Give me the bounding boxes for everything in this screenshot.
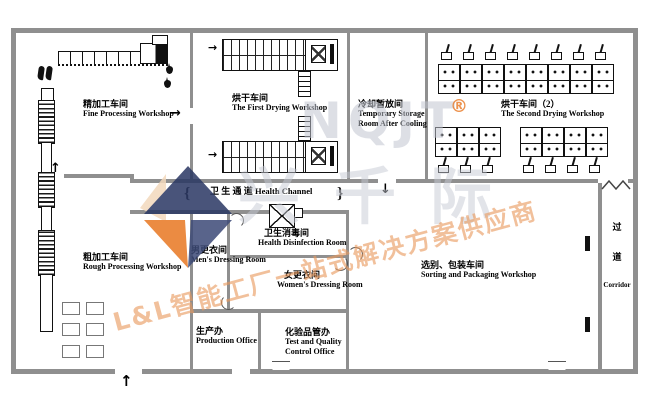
room-label-first-drying: 烘干车间 The First Drying Workshop <box>232 93 327 113</box>
wall-main-horizontal <box>396 179 598 183</box>
door-swing <box>348 247 363 262</box>
room-label-production-office: 生产办 Production Office <box>196 326 257 346</box>
door-brace: { <box>184 186 190 202</box>
hand-truck-icon <box>484 43 497 61</box>
drying-cabinet <box>526 64 548 94</box>
entrance-arrow-up: ↑ <box>120 374 133 389</box>
room-label-temporary-storage: 冷却暂放间 Temporary Storage Room After Cooli… <box>358 99 427 128</box>
production-line-segment <box>38 100 55 144</box>
hand-truck-icon <box>550 43 563 61</box>
fan-icon <box>311 147 326 165</box>
room-label-men-dressing: 男更衣间 Men's Dressing Room <box>191 245 266 265</box>
production-line-segment <box>38 230 55 276</box>
flow-arrow-down: ↓ <box>380 183 391 196</box>
pass-through-window <box>269 204 295 228</box>
dryer-head <box>306 40 337 70</box>
fan-icon <box>37 66 45 81</box>
door-swing <box>333 256 348 271</box>
drying-cabinet <box>570 64 592 94</box>
door-leaf <box>585 317 590 332</box>
work-table <box>86 323 104 336</box>
factory-floor-plan: → → → ↑ ↑ ↓ { } 精加工车间 Fine Processing Wo… <box>0 0 650 403</box>
flow-arrow-right: → <box>208 42 217 53</box>
flow-arrow-up: ↑ <box>50 162 61 175</box>
dryer-head <box>306 142 337 172</box>
wall-firstdrying-storage <box>347 33 350 179</box>
drying-cabinet <box>479 127 501 157</box>
hand-truck-icon <box>588 156 601 174</box>
wall-dressing-left <box>190 210 193 370</box>
droplet-icon <box>166 66 173 74</box>
hand-truck-icon <box>506 43 519 61</box>
drying-cabinet <box>592 64 614 94</box>
wall-fine-rough-divider <box>64 174 134 178</box>
wall-outer-top <box>11 28 638 33</box>
drying-cabinet <box>504 64 526 94</box>
drying-cabinet <box>520 127 542 157</box>
trolley-stack <box>298 116 311 141</box>
production-line-segment <box>41 206 52 232</box>
hand-truck-icon <box>462 43 475 61</box>
room-label-quality-office: 化验品管办 Test and Quality Control Office <box>285 327 342 356</box>
drying-cabinet <box>460 64 482 94</box>
fan-icon <box>45 66 53 81</box>
fan-icon <box>311 45 326 63</box>
work-table <box>86 302 104 315</box>
room-label-fine-processing: 精加工车间 Fine Processing Workshop <box>83 99 174 119</box>
wall-outer-right <box>633 28 638 374</box>
hand-truck-icon <box>572 43 585 61</box>
room-label-health-disinfection: 卫生消毒间 Health Disinfection Room <box>258 228 346 248</box>
folding-door-icon <box>601 178 633 191</box>
wall-sorting-left <box>346 210 349 370</box>
hand-truck-icon <box>594 43 607 61</box>
work-table <box>62 345 80 358</box>
droplet-icon <box>164 80 171 88</box>
room-label-sorting-packaging: 选别、包装车间 Sorting and Packaging Workshop <box>421 260 536 280</box>
room-label-second-drying: 烘干车间（2） The Second Drying Workshop <box>501 99 604 119</box>
wall-outer-bottom <box>250 369 638 374</box>
wall-fine-firstdrying <box>190 124 193 179</box>
door-leaf <box>585 236 590 251</box>
conveyor-end-machine <box>140 43 168 64</box>
hand-truck-icon <box>566 156 579 174</box>
drying-machine <box>222 39 338 71</box>
door-brace: } <box>337 186 343 202</box>
hand-truck-icon <box>544 156 557 174</box>
hand-truck-icon <box>437 156 450 174</box>
drying-cabinet <box>435 127 457 157</box>
wall-offices-top <box>190 309 348 313</box>
wall-offices-divider <box>258 313 261 370</box>
wall-outer-bottom <box>11 369 115 374</box>
work-table <box>62 302 80 315</box>
hand-truck-icon <box>440 43 453 61</box>
wall-outer-left <box>11 28 16 374</box>
dryer-grid <box>223 142 306 172</box>
room-label-rough-processing: 粗加工车间 Rough Processing Workshop <box>83 252 181 272</box>
dryer-bar <box>330 44 334 64</box>
drying-cabinet <box>564 127 586 157</box>
room-label-corridor: 过 道 Corridor <box>598 222 636 289</box>
wall-outer-bottom <box>142 369 232 374</box>
wall-fine-firstdrying <box>190 33 193 108</box>
drying-cabinet <box>542 127 564 157</box>
drying-cabinet <box>548 64 570 94</box>
conveyor-hopper <box>152 35 168 45</box>
registered-trademark-icon: ® <box>450 96 468 117</box>
hand-truck-icon <box>528 43 541 61</box>
room-label-health-channel: 卫 生 通 道 Health Channel <box>210 186 312 197</box>
hand-truck-icon <box>522 156 535 174</box>
drying-cabinet <box>457 127 479 157</box>
flow-arrow-right: → <box>208 149 217 160</box>
hand-truck-icon <box>459 156 472 174</box>
production-line-segment <box>38 172 55 208</box>
dryer-bar <box>330 146 334 166</box>
work-table <box>86 345 104 358</box>
work-table <box>62 323 80 336</box>
production-line-segment <box>40 274 53 332</box>
wall-main-horizontal <box>134 179 378 183</box>
door-triangle <box>548 361 566 370</box>
room-label-women-dressing: 女更衣间 Women's Dressing Room <box>277 270 363 290</box>
door-triangle <box>272 361 290 370</box>
pass-through-tab <box>294 208 303 218</box>
door-swing <box>229 213 244 228</box>
drying-cabinet <box>438 64 460 94</box>
drying-machine <box>222 141 338 173</box>
drying-cabinet <box>586 127 608 157</box>
drying-cabinet <box>482 64 504 94</box>
dryer-grid <box>223 40 306 70</box>
hand-truck-icon <box>481 156 494 174</box>
